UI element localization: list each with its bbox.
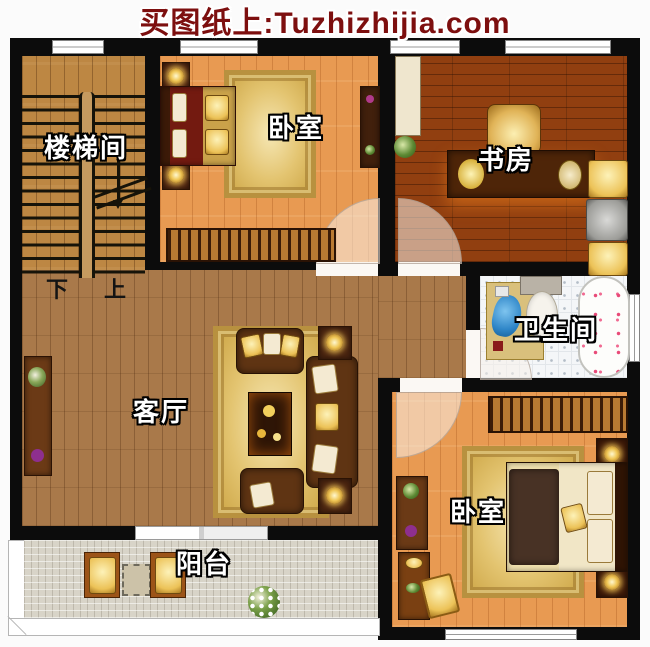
bed-throw xyxy=(205,129,229,155)
lamp-icon xyxy=(604,574,620,590)
bed-throw xyxy=(205,95,229,121)
sofa-main xyxy=(306,356,358,488)
room-label-bedroom-top: 卧室 xyxy=(268,108,324,145)
table-decor xyxy=(273,433,281,441)
door-gap-bedroom-top xyxy=(316,262,378,276)
table-decor xyxy=(257,429,266,438)
site-title: 买图纸上:Tuzhizhijia.com xyxy=(0,0,650,42)
table-decor xyxy=(263,405,275,417)
decor-dot xyxy=(366,95,374,103)
balcony-sliding-door xyxy=(135,526,268,540)
plant-icon xyxy=(394,136,416,158)
room-label-living: 客厅 xyxy=(133,392,189,429)
room-label-bathroom: 卫生间 xyxy=(514,310,598,347)
lamp-icon xyxy=(326,487,343,504)
window-stairwell-top xyxy=(52,40,104,54)
desk-clock-icon xyxy=(558,160,582,190)
desk-item xyxy=(405,557,423,569)
plant-icon xyxy=(28,367,46,387)
room-label-bedroom-bottom: 卧室 xyxy=(450,492,506,529)
chair-cushion xyxy=(89,557,116,594)
sofa-cushion xyxy=(249,481,275,508)
sofa-cushion xyxy=(263,333,281,355)
pillow xyxy=(172,129,187,158)
pillow xyxy=(587,471,613,515)
plant-icon xyxy=(403,483,419,499)
lamp-icon xyxy=(604,446,620,462)
pillow xyxy=(172,93,187,122)
door-gap-study xyxy=(398,262,460,276)
stair-label-up: 上 xyxy=(104,272,126,304)
pillow xyxy=(587,519,613,563)
sofa-cushion xyxy=(315,403,339,431)
room-label-balcony: 阳台 xyxy=(176,544,232,581)
door-gap-bedroom-bottom xyxy=(400,378,462,392)
room-label-study: 书房 xyxy=(478,140,534,177)
window-study-right-top xyxy=(505,40,611,54)
balcony-table xyxy=(122,564,151,596)
loveseat-bottom xyxy=(240,468,304,514)
balcony-chair xyxy=(84,552,120,598)
plant-icon xyxy=(406,583,420,593)
study-seat-cushion xyxy=(588,160,628,198)
balcony-flower-pot xyxy=(248,586,280,618)
window-study-left-top xyxy=(390,40,460,54)
sofa-cushion xyxy=(240,333,264,359)
stair-arrow-head xyxy=(113,200,123,209)
balcony-parapet-bottom xyxy=(8,618,380,636)
lamp-icon xyxy=(168,68,184,84)
coffee-table xyxy=(248,392,292,456)
loveseat-top xyxy=(236,328,304,374)
bed-top xyxy=(160,86,236,166)
stair-label-down: 下 xyxy=(46,272,68,304)
floorplan-page: 买图纸上:Tuzhizhijia.com xyxy=(0,0,650,647)
side-table xyxy=(318,478,352,514)
bed-bottom xyxy=(506,462,628,572)
study-seat-cushion xyxy=(588,242,628,276)
mat-item xyxy=(495,286,509,297)
lamp-icon xyxy=(168,167,184,183)
window-bedroom-bottom xyxy=(445,629,577,640)
window-bathroom-right xyxy=(629,294,640,362)
room-hall-floor xyxy=(378,276,466,378)
bedroom-top-bench xyxy=(166,228,336,262)
console xyxy=(396,476,428,550)
tv-console xyxy=(24,356,52,476)
door-gap-bathroom xyxy=(466,330,480,378)
decor-dot xyxy=(31,449,44,462)
dresser xyxy=(360,86,380,168)
side-table xyxy=(318,326,352,360)
plant-icon xyxy=(365,145,375,155)
sofa-cushion xyxy=(311,363,339,394)
sofa-cushion xyxy=(311,443,339,474)
bed-throw xyxy=(560,503,588,534)
stair-stringer xyxy=(79,92,95,278)
study-seat-cushion xyxy=(586,199,628,241)
mat-item xyxy=(493,341,503,351)
decor-dot xyxy=(405,525,417,537)
bed-blanket xyxy=(509,469,559,565)
lamp-icon xyxy=(326,334,343,351)
room-label-stairwell: 楼梯间 xyxy=(44,128,128,165)
sofa-cushion xyxy=(279,334,301,359)
window-bedroom-top xyxy=(180,40,258,54)
study-cabinet xyxy=(395,56,421,136)
bedroom-bottom-bench xyxy=(488,396,628,433)
